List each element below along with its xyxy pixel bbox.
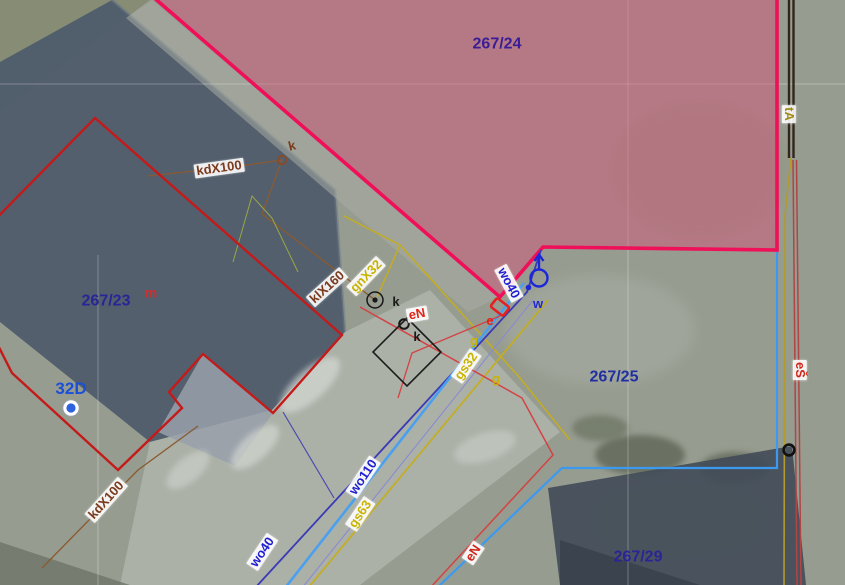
point-letter-e: e [486,314,493,328]
k-point-inner [372,297,377,302]
point-letter-k-2: k [413,330,420,344]
house-number-marker [63,400,79,416]
point-letter-w: w [533,297,543,311]
parcel-label-267-23: 267/23 [82,294,131,311]
utility-label-tA: tA [782,105,796,123]
parcel-label-267-24: 267/24 [473,37,522,54]
point-letter-k-1: k [392,295,399,309]
map-canvas[interactable]: 267/24 267/23 267/25 267/29 m 32D kdX100… [0,0,845,585]
electric-label-eS: eŠ [793,360,807,380]
parcel-label-267-29: 267/29 [614,550,663,567]
point-letter-g-1: g [470,334,478,348]
point-letter-m: m [145,286,157,301]
house-number-32D: 32D [55,380,86,398]
point-letter-g-2: g [492,372,500,386]
parcel-label-267-25: 267/25 [590,370,639,387]
